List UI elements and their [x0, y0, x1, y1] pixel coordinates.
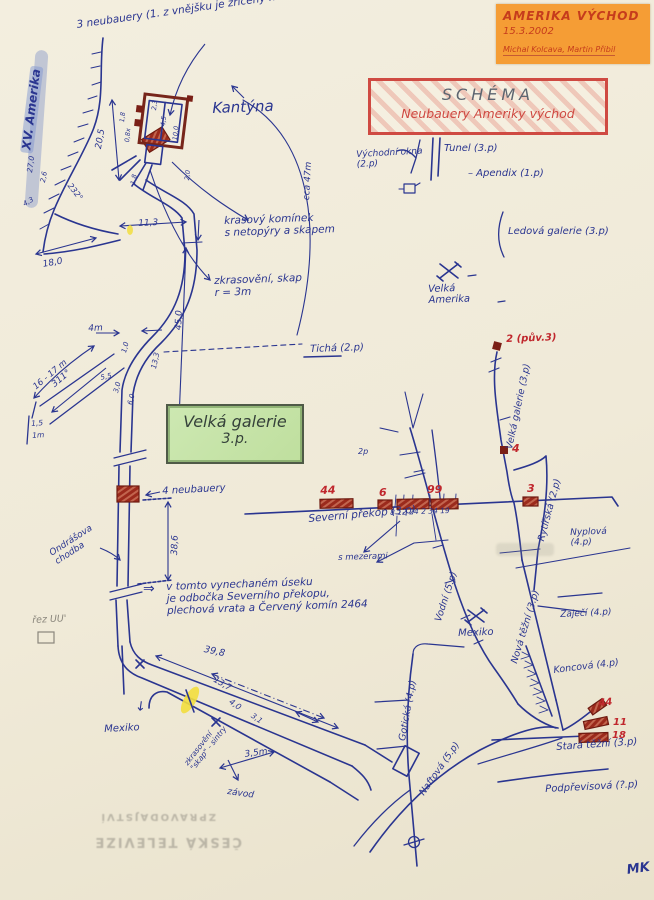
k-dim-1-8: 1,8	[119, 112, 127, 123]
k-dim-10-0: 10,0	[172, 126, 181, 141]
dim-45-0: 45,0	[174, 310, 185, 330]
krasovy-kominek-label: krasový komínek s netopýry a skapem	[224, 212, 335, 239]
double-arrow-glyph: ⇒	[143, 582, 155, 598]
apendix-label: – Apendix (1.p)	[468, 168, 544, 179]
note-authors: Michal Kolcava, Martin Přibil	[503, 45, 615, 56]
vychodni-okna-label: Východní okna (2.p)	[356, 147, 423, 171]
velka-galerie-box: Velká galerie 3.p.	[166, 404, 304, 464]
tunel-label: Tunel (3.p)	[444, 143, 498, 154]
mexiko-right-label: Mexiko	[458, 627, 494, 639]
mining-hammers-icon-velka-amerika	[437, 262, 461, 281]
gallery-box-line2: 3.p.	[168, 431, 302, 447]
schema-subtitle: Neubauery Ameriky východ	[371, 106, 605, 121]
ticha-label: Tichá (2.p)	[310, 342, 364, 355]
mexiko-passages	[118, 642, 419, 800]
k-dim-4-5: 4,5	[160, 116, 168, 127]
schema-title-box: SCHÉMA Neubauery Ameriky východ	[368, 78, 608, 135]
marker4-label: 4	[512, 443, 520, 455]
dim-1m: 1m	[32, 431, 45, 440]
watermark-line2: ČESKÁ TELEVIZE	[93, 833, 242, 848]
note-date: 15.3.2002	[503, 26, 643, 37]
yellow-dot	[127, 225, 133, 235]
mexiko-left-arrow: ↓	[134, 700, 147, 716]
author-sticky-note: AMERIKA VÝCHOD 15.3.2002 Michal Kolcava,…	[496, 4, 650, 64]
dim-38-6: 38,6	[170, 535, 181, 555]
erased-pencil-label	[496, 543, 554, 556]
kantyna-building	[130, 89, 193, 167]
kantyna-label: Kantýna	[212, 98, 274, 117]
velka-amerika-label: Velká Amerika	[428, 283, 470, 307]
dim-4m: 4m	[88, 323, 103, 334]
dim-11-3: 11,3	[138, 218, 159, 229]
schema-title: SCHÉMA	[371, 85, 605, 104]
gallery-box-line1: Velká galerie	[168, 412, 302, 431]
vynechany-usek-note: v tomto vynechaném úseku je odbočka Seve…	[166, 575, 368, 617]
2p-label: 2p	[358, 448, 368, 457]
note-title: AMERIKA VÝCHOD	[503, 9, 643, 23]
red-seg-6-label: 6	[379, 487, 387, 499]
symbols	[38, 225, 487, 726]
k-dim-2-0: 2,0	[184, 170, 192, 181]
s-mezerami-label: s mezerami	[338, 552, 388, 563]
red-seg-3-label: 3	[527, 483, 535, 495]
dim-cca-47m: cca 47m	[302, 162, 314, 201]
scanned-map-page: AMERIKA VÝCHOD 15.3.2002 Michal Kolcava,…	[0, 0, 654, 900]
mining-hammers-icon-mexiko	[465, 608, 487, 625]
zkrasoveni-label: zkrasovění, skap r = 3m	[214, 273, 303, 300]
k-dim-2-3: 2,3	[151, 100, 159, 111]
section-square	[38, 632, 54, 643]
dim-1-5: 1,5	[31, 419, 43, 428]
red-seg-99-label: 99	[427, 484, 442, 496]
k-dim-0-8: 0,8x	[124, 128, 133, 143]
red-44b-label: 44	[598, 697, 613, 709]
cliff-edge	[40, 38, 120, 254]
marker2-label: 2 (pův.3)	[506, 332, 557, 345]
rez-uu-label: řez UU'	[32, 614, 67, 626]
watermark-line1: ZPRAVODAJSTVÍ	[99, 811, 216, 822]
red-seg-44-label: 44	[320, 484, 336, 497]
nyplova-label: Nyplová (4.p)	[570, 527, 607, 548]
mexiko-left-label: Mexiko	[104, 722, 140, 735]
ledova-galerie-label: Ledová galerie (3.p)	[508, 226, 609, 237]
red-18-label: 18	[612, 730, 626, 741]
red-11-label: 11	[613, 717, 627, 728]
